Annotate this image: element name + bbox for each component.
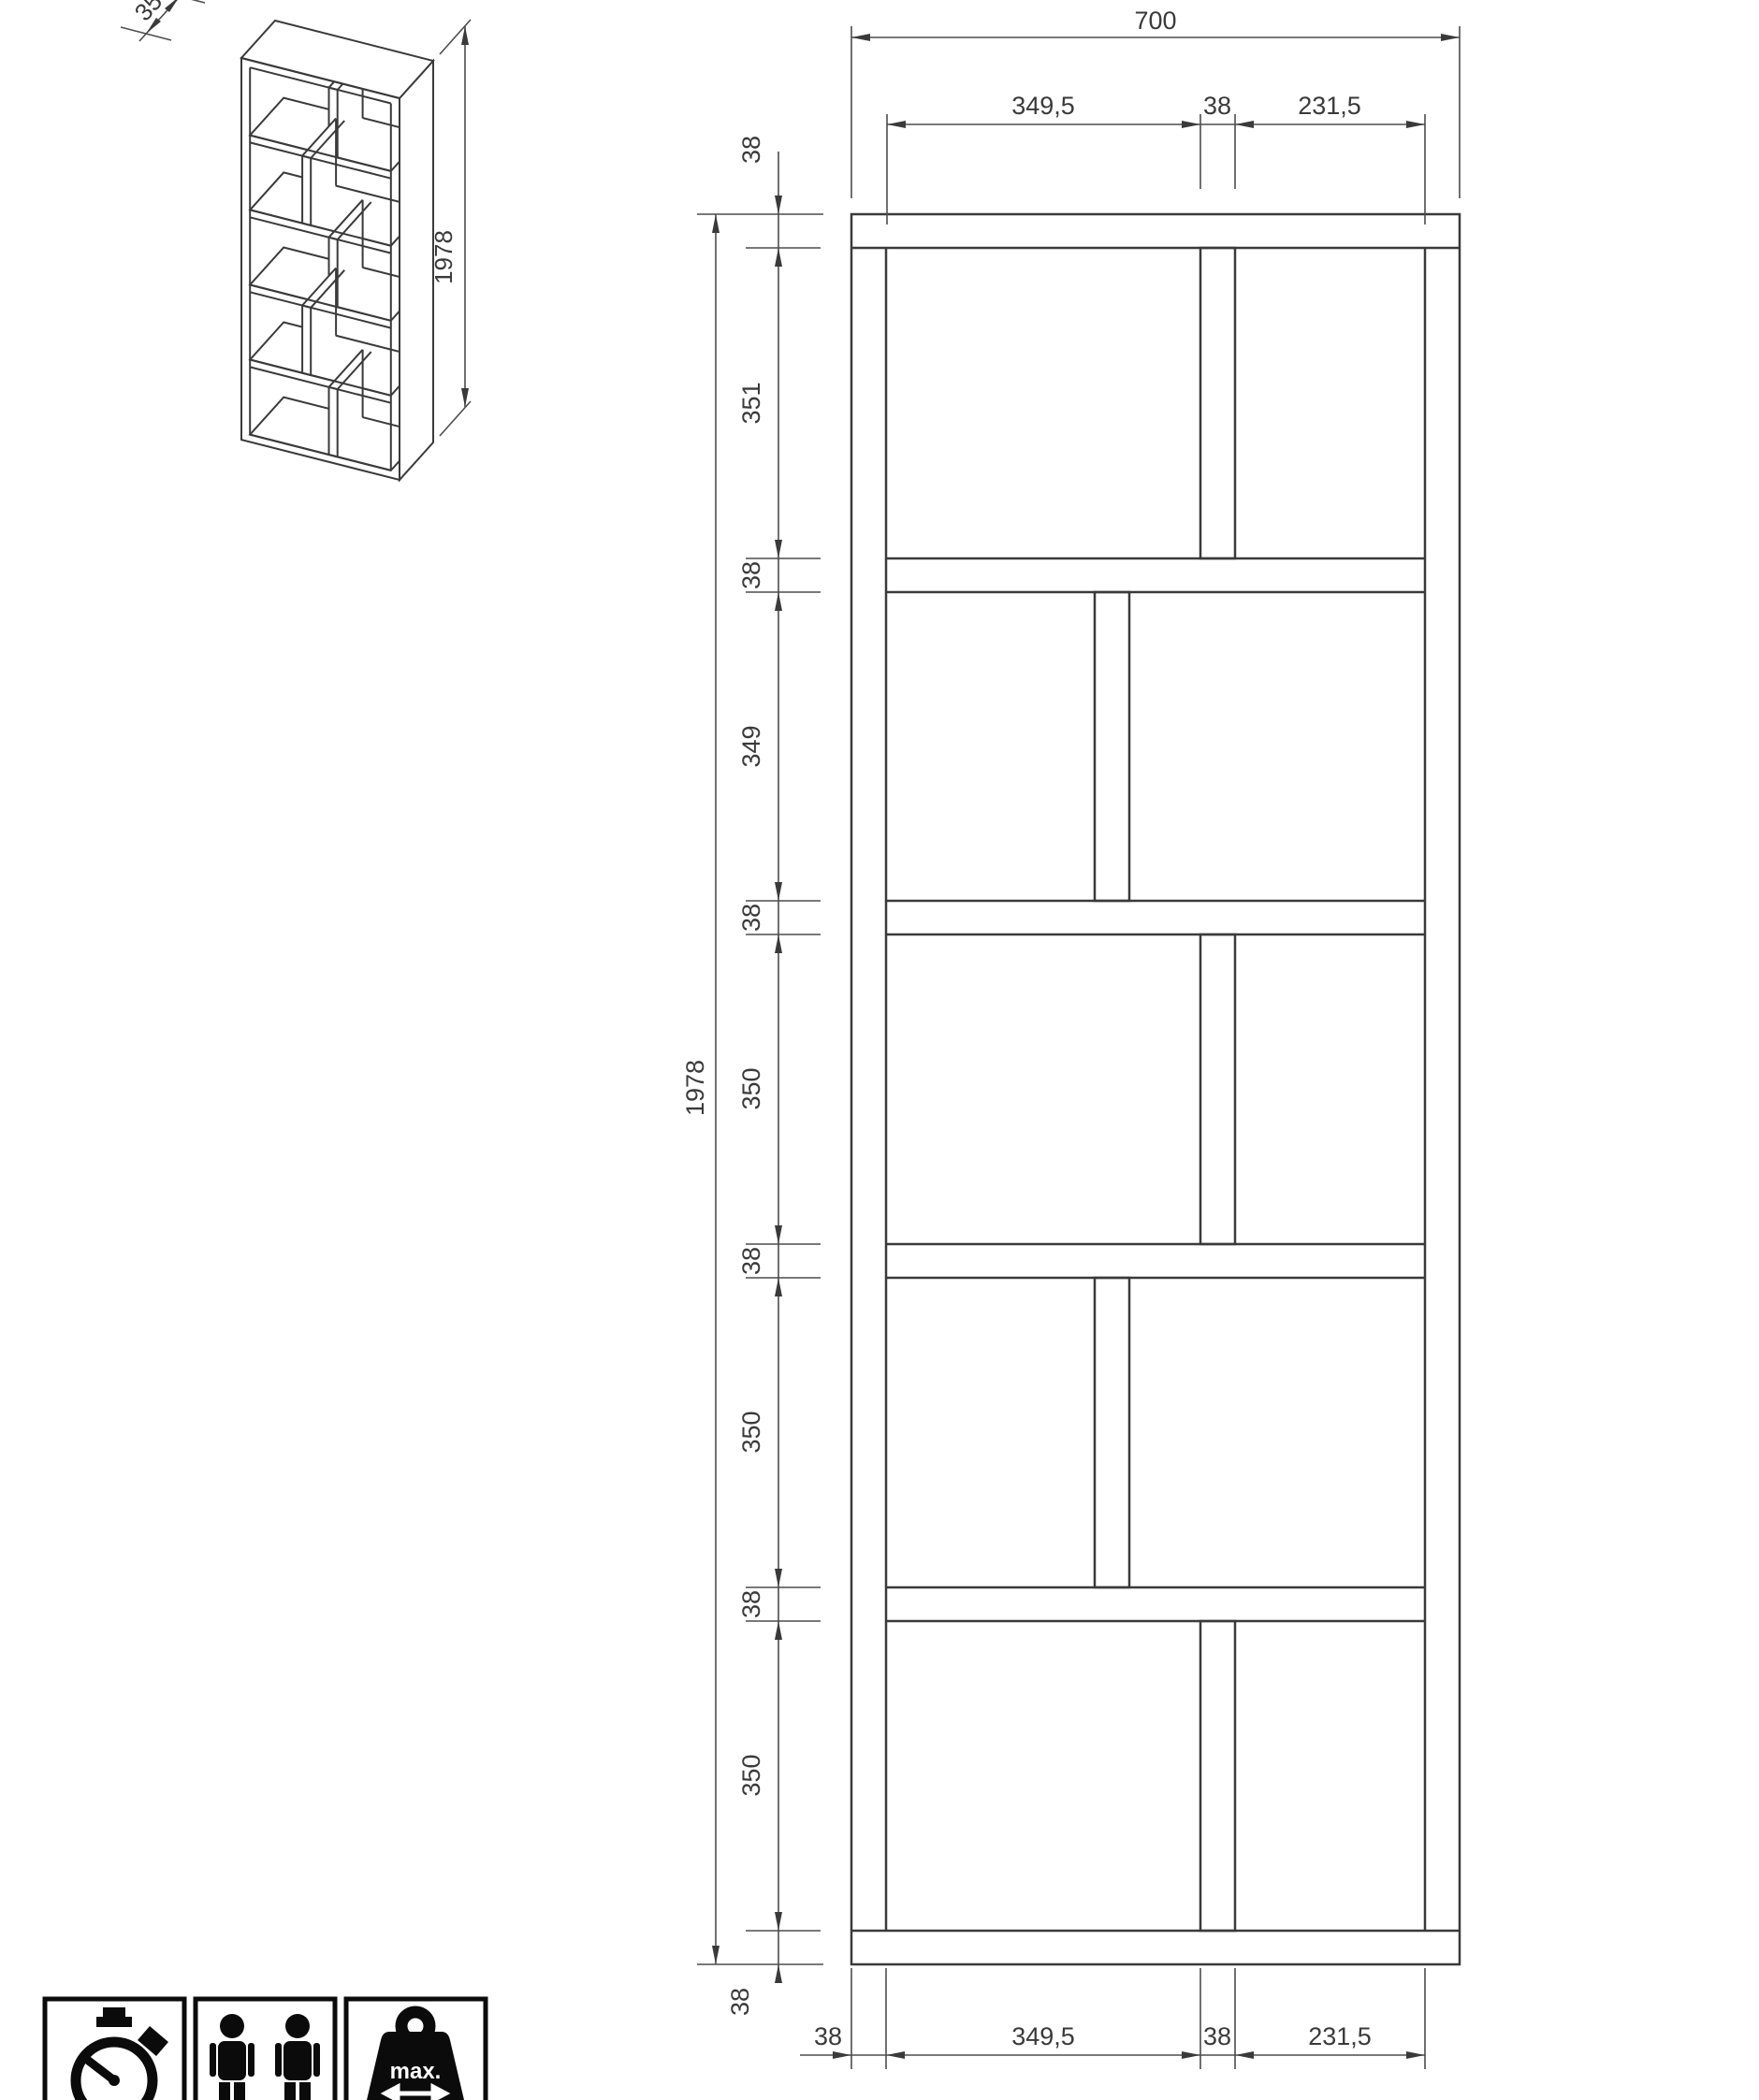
technical-drawing: 350 1978 700 349,5 38 231,5 1978 38 351 … — [0, 0, 1759, 2100]
dim-label-left-1: 351 — [737, 382, 765, 424]
dim-label-left-2: 38 — [737, 561, 765, 589]
dim-label-bottom-side-panel: 38 — [814, 2022, 842, 2050]
max-weight-label: max. — [390, 2059, 442, 2084]
dim-label-left-5: 350 — [737, 1067, 765, 1109]
dim-label-bottom-right-opening: 231,5 — [1308, 2022, 1372, 2050]
page-background — [0, 0, 1759, 2100]
dim-label-top-divider: 38 — [1203, 92, 1231, 120]
two-persons-icon — [196, 1999, 335, 2100]
iso-height-dim-label: 1978 — [429, 230, 458, 284]
stopwatch-icon — [45, 1999, 184, 2100]
dim-label-left-4: 38 — [737, 904, 765, 932]
dim-label-left-7: 350 — [737, 1411, 765, 1453]
dim-label-bottom-left-opening: 349,5 — [1011, 2022, 1075, 2050]
dim-label-overall-height: 1978 — [681, 1060, 709, 1116]
dim-label-left-6: 38 — [737, 1247, 765, 1275]
dim-label-top-left-opening: 349,5 — [1011, 92, 1075, 120]
spec-icons: max. — [45, 1999, 486, 2100]
dim-label-bottom-divider: 38 — [1203, 2022, 1231, 2050]
dim-label-overall-width: 700 — [1134, 7, 1176, 35]
dim-label-top-right-opening: 231,5 — [1298, 92, 1361, 120]
dim-label-left-10: 38 — [726, 1988, 754, 2016]
dim-label-left-3: 349 — [737, 725, 765, 767]
dim-label-left-8: 38 — [737, 1590, 765, 1618]
dim-label-left-0: 38 — [737, 136, 765, 164]
dim-label-left-9: 350 — [737, 1754, 765, 1796]
max-weight-icon: max. — [346, 1999, 486, 2100]
